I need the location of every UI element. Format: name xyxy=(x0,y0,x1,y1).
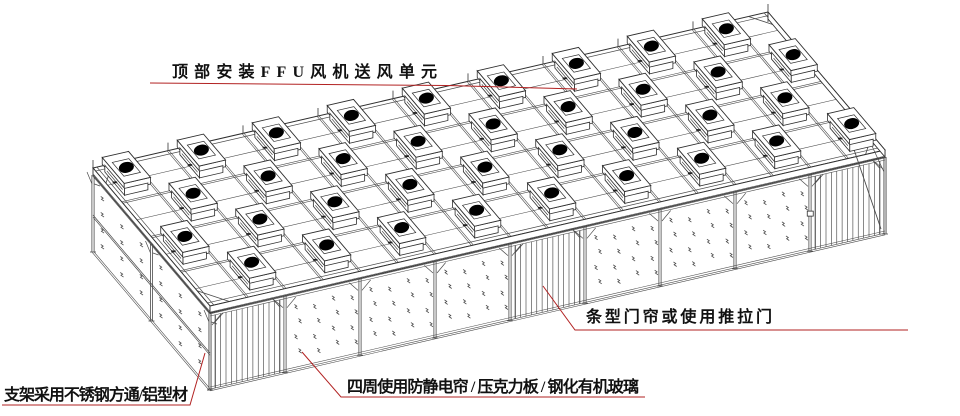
ffu-latch-icon xyxy=(779,69,784,71)
ffu-latch-icon xyxy=(404,155,409,157)
ffu-latch-icon xyxy=(171,250,176,252)
glass-sparkle xyxy=(426,308,429,313)
glass-sparkle xyxy=(669,248,672,253)
ffu-latch-icon xyxy=(563,77,568,79)
glass-sparkle xyxy=(707,239,710,244)
glass-sparkle xyxy=(407,279,410,284)
glass-panel xyxy=(594,226,658,284)
glass-sparkle xyxy=(482,291,485,296)
glass-sparkle xyxy=(767,244,770,249)
ffu-latch-icon xyxy=(246,233,251,235)
glass-sparkle xyxy=(594,235,597,240)
glass-sparkle xyxy=(726,239,729,244)
ffu-latch-icon xyxy=(113,181,118,183)
glass-sparkle xyxy=(467,314,470,319)
glass-sparkle xyxy=(448,284,451,289)
glass-sparkle xyxy=(298,319,301,324)
glass-sparkle xyxy=(140,291,143,296)
glass-sparkle xyxy=(594,265,597,270)
glass-sparkle xyxy=(336,310,339,315)
wall-gusset xyxy=(437,263,446,274)
glass-sparkle xyxy=(501,261,504,266)
glass-sparkle xyxy=(613,265,616,270)
glass-sparkle xyxy=(388,317,391,322)
ffu-latch-icon xyxy=(388,242,393,244)
annotation-label-enclosure: 四周使用防静电帘 / 压克力板 / 钢化有机玻璃 xyxy=(347,377,639,396)
glass-sparkle xyxy=(430,292,433,297)
glass-sparkle xyxy=(313,304,316,309)
ffu-latch-icon xyxy=(638,60,643,62)
glass-sparkle xyxy=(801,192,804,197)
glass-sparkle xyxy=(748,245,751,250)
glass-panel xyxy=(744,192,808,250)
glass-sparkle xyxy=(744,201,747,206)
ffu-latch-icon xyxy=(471,181,476,183)
glass-sparkle xyxy=(617,279,620,284)
glass-sparkle xyxy=(120,225,123,230)
glass-sparkle xyxy=(763,200,766,205)
glass-sparkle xyxy=(317,318,320,323)
annotation-label-door: 条型门帘或使用推拉门 xyxy=(585,307,772,326)
annotation-label-ffu: 顶部安装FFU风机送风单元 xyxy=(172,62,437,81)
glass-sparkle xyxy=(101,197,104,202)
ffu-latch-icon xyxy=(613,190,618,192)
glass-sparkle xyxy=(426,278,429,283)
glass-sparkle xyxy=(179,294,182,299)
glass-sparkle xyxy=(351,296,354,301)
ffu-latch-icon xyxy=(621,146,626,148)
ffu-latch-icon xyxy=(704,86,709,88)
wall-gusset xyxy=(499,248,508,256)
glass-sparkle xyxy=(598,249,601,254)
glass-sparkle xyxy=(786,236,789,241)
ffu-latch-icon xyxy=(696,129,701,131)
glass-sparkle xyxy=(782,192,785,197)
glass-sparkle xyxy=(101,213,104,218)
glass-sparkle xyxy=(505,275,508,280)
ffu-latch-icon xyxy=(179,207,184,209)
glass-sparkle xyxy=(636,271,639,276)
glass-sparkle xyxy=(463,300,466,305)
glass-sparkle xyxy=(730,253,733,258)
ffu-latch-icon xyxy=(546,164,551,166)
glass-sparkle xyxy=(120,257,123,262)
glass-sparkle xyxy=(486,305,489,310)
wall-gusset xyxy=(287,297,296,308)
glass-sparkle xyxy=(707,209,710,214)
glass-sparkle xyxy=(655,270,658,275)
ffu-latch-icon xyxy=(538,207,543,209)
glass-sparkle xyxy=(332,296,335,301)
glass-sparkle xyxy=(448,314,451,319)
glass-sparkle xyxy=(486,275,489,280)
glass-sparkle xyxy=(744,231,747,236)
wall-gusset xyxy=(724,196,733,204)
glass-sparkle xyxy=(673,262,676,267)
glass-sparkle xyxy=(392,301,395,306)
wall-gusset xyxy=(512,245,521,256)
glass-sparkle xyxy=(317,348,320,353)
wall-gusset xyxy=(812,176,821,187)
glass-sparkle xyxy=(159,282,162,287)
ffu-latch-icon xyxy=(488,95,493,97)
ffu-latch-icon xyxy=(763,155,768,157)
ffu-latch-icon xyxy=(713,43,718,45)
glass-sparkle xyxy=(388,287,391,292)
glass-sparkle xyxy=(782,222,785,227)
wall-gusset xyxy=(362,280,371,291)
annotation-enclosure: 四周使用防静电帘 / 压克力板 / 钢化有机玻璃 xyxy=(302,352,645,397)
glass-sparkle xyxy=(294,335,297,340)
glass-panel xyxy=(444,261,508,319)
wall-gusset xyxy=(587,228,596,239)
glass-sparkle xyxy=(632,227,635,232)
glass-sparkle xyxy=(692,262,695,267)
glass-sparkle xyxy=(805,206,808,211)
wall-gusset xyxy=(424,265,433,273)
glass-sparkle xyxy=(373,331,376,336)
ffu-latch-icon xyxy=(321,216,326,218)
glass-sparkle xyxy=(159,266,162,271)
ffu-latch-icon xyxy=(771,112,776,114)
glass-sparkle xyxy=(688,248,691,253)
glass-sparkle xyxy=(673,232,676,237)
strip-curtain-door xyxy=(515,229,580,319)
glass-sparkle xyxy=(298,349,301,354)
glass-sparkle xyxy=(430,322,433,327)
ffu-latch-icon xyxy=(838,138,843,140)
ffu-latch-icon xyxy=(688,172,693,174)
wall-gusset xyxy=(95,184,101,186)
glass-sparkle xyxy=(369,317,372,322)
glass-sparkle xyxy=(767,214,770,219)
wall-gusset xyxy=(87,172,92,184)
ffu-latch-icon xyxy=(396,198,401,200)
glass-sparkle xyxy=(411,293,414,298)
ffu-latch-icon xyxy=(463,224,468,226)
annotation-door: 条型门帘或使用推拉门 xyxy=(543,286,908,330)
glass-sparkle xyxy=(726,209,729,214)
wall-gusset xyxy=(662,211,671,222)
glass-sparkle xyxy=(655,240,658,245)
door-top-chamfer xyxy=(272,298,280,307)
glass-sparkle xyxy=(336,340,339,345)
glass-sparkle xyxy=(355,340,358,345)
glass-sparkle xyxy=(651,226,654,231)
glass-sparkle xyxy=(179,342,182,347)
glass-sparkle xyxy=(482,261,485,266)
glass-sparkle xyxy=(805,236,808,241)
door-handle-icon xyxy=(807,211,813,216)
glass-sparkle xyxy=(411,323,414,328)
glass-sparkle xyxy=(179,310,182,315)
diagram-canvas: 顶部安装FFU风机送风单元 支架采用不锈钢方通/铝型材 四周使用防静电帘 / 压… xyxy=(0,0,960,416)
ffu-latch-icon xyxy=(254,190,259,192)
glass-sparkle xyxy=(467,284,470,289)
glass-sparkle xyxy=(692,232,695,237)
glass-sparkle xyxy=(748,215,751,220)
glass-sparkle xyxy=(463,270,466,275)
glass-sparkle xyxy=(332,326,335,331)
annotation-label-frame: 支架采用不锈钢方通/铝型材 xyxy=(3,385,188,404)
strip-curtain-door xyxy=(215,298,280,388)
glass-sparkle xyxy=(369,287,372,292)
glass-panel xyxy=(294,296,358,354)
glass-sparkle xyxy=(392,331,395,336)
glass-sparkle xyxy=(373,301,376,306)
glass-sparkle xyxy=(505,305,508,310)
wall-gusset xyxy=(574,231,583,239)
annotation-frame: 支架采用不锈钢方通/铝型材 xyxy=(2,353,205,405)
wall-gusset xyxy=(737,193,746,204)
glass-sparkle xyxy=(617,249,620,254)
glass-sparkle xyxy=(294,305,297,310)
glass-sparkle xyxy=(688,218,691,223)
glass-sparkle xyxy=(613,235,616,240)
wall-gusset xyxy=(153,253,159,255)
ffu-latch-icon xyxy=(338,129,343,131)
ffu-latch-icon xyxy=(329,173,334,175)
glass-sparkle xyxy=(140,259,143,264)
ffu-latch-icon xyxy=(188,164,193,166)
glass-sparkle xyxy=(501,291,504,296)
glass-sparkle xyxy=(786,206,789,211)
wall-gusset xyxy=(874,161,883,169)
glass-sparkle xyxy=(407,309,410,314)
ffu-latch-icon xyxy=(263,147,268,149)
cleanroom-isometric-diagram: 顶部安装FFU风机送风单元 支架采用不锈钢方通/铝型材 四周使用防静电帘 / 压… xyxy=(0,0,960,416)
glass-sparkle xyxy=(198,312,201,317)
ffu-latch-icon xyxy=(313,259,318,261)
glass-panel xyxy=(369,278,433,336)
glass-sparkle xyxy=(101,245,104,250)
wall-gusset xyxy=(649,213,658,221)
glass-sparkle xyxy=(159,314,162,319)
wall-gusset xyxy=(274,300,283,308)
glass-sparkle xyxy=(313,334,316,339)
glass-sparkle xyxy=(120,241,123,246)
glass-sparkle xyxy=(355,310,358,315)
glass-sparkle xyxy=(120,273,123,278)
glass-sparkle xyxy=(801,222,804,227)
glass-sparkle xyxy=(711,223,714,228)
door-top-chamfer xyxy=(572,229,580,238)
glass-sparkle xyxy=(140,243,143,248)
glass-sparkle xyxy=(198,360,201,365)
glass-sparkle xyxy=(598,279,601,284)
wall-gusset xyxy=(799,179,808,187)
glass-sparkle xyxy=(636,241,639,246)
ffu-latch-icon xyxy=(554,121,559,123)
glass-sparkle xyxy=(711,253,714,258)
glass-sparkle xyxy=(763,230,766,235)
glass-sparkle xyxy=(730,223,733,228)
glass-sparkle xyxy=(444,270,447,275)
glass-panel xyxy=(669,209,733,267)
glass-sparkle xyxy=(198,328,201,333)
ffu-latch-icon xyxy=(629,103,634,105)
ffu-latch-icon xyxy=(238,276,243,278)
ffu-latch-icon xyxy=(413,112,418,114)
glass-sparkle xyxy=(179,326,182,331)
ffu-latch-icon xyxy=(479,138,484,140)
glass-sparkle xyxy=(651,256,654,261)
glass-sparkle xyxy=(669,218,672,223)
glass-sparkle xyxy=(444,300,447,305)
wall-gusset xyxy=(349,283,358,291)
glass-sparkle xyxy=(351,326,354,331)
glass-sparkle xyxy=(632,257,635,262)
